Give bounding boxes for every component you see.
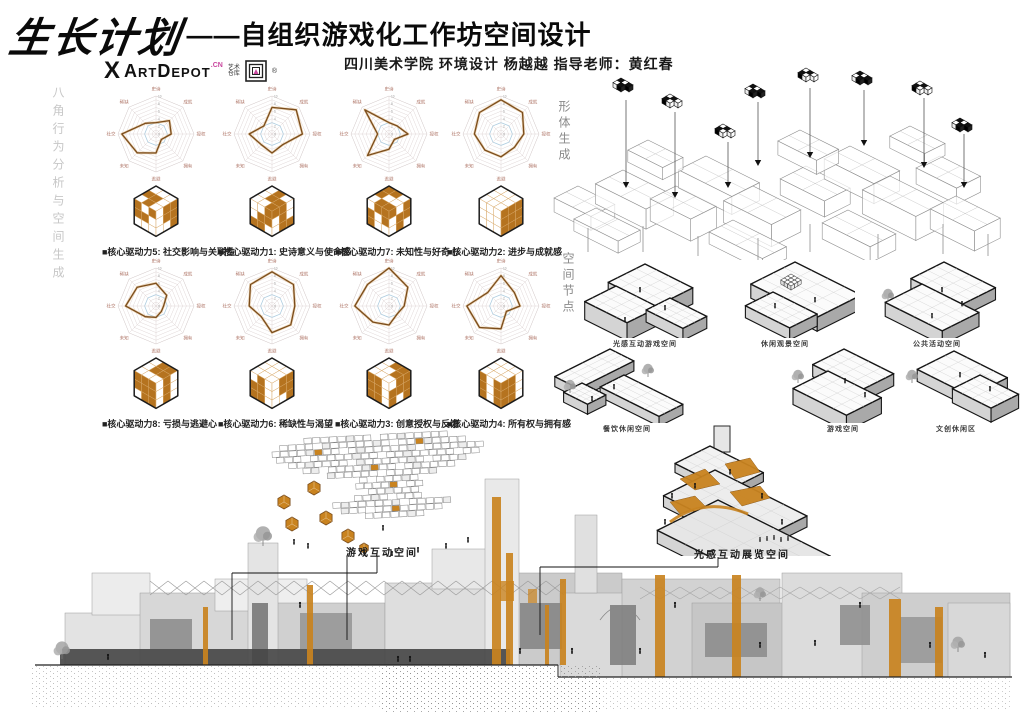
- svg-text:2: 2: [503, 125, 505, 129]
- octalysis-cell: 0246810史诗成就授权拥有逃避未知社交稀缺 ■核心驱动力5: 社交影响与关联…: [100, 86, 212, 258]
- svg-text:授权: 授权: [542, 303, 551, 310]
- logo-tagline-2: 仓库: [228, 71, 240, 77]
- svg-text:逃避: 逃避: [385, 176, 394, 183]
- svg-text:拥有: 拥有: [528, 162, 537, 169]
- svg-text:0: 0: [158, 132, 160, 136]
- svg-text:社交: 社交: [223, 303, 232, 310]
- svg-text:4: 4: [158, 289, 160, 293]
- svg-text:成就: 成就: [299, 99, 308, 106]
- svg-text:10: 10: [391, 94, 395, 98]
- space-node-caption: 文创休闲区: [890, 424, 1022, 434]
- svg-text:拥有: 拥有: [299, 334, 308, 341]
- svg-text:史诗: 史诗: [497, 86, 506, 93]
- voxel-cube-icon: [100, 182, 212, 244]
- svg-text:成就: 成就: [299, 271, 308, 278]
- svg-text:社交: 社交: [107, 131, 116, 138]
- voxel-cube-icon: [445, 354, 557, 416]
- form-generation-axon: [548, 38, 1024, 260]
- svg-text:成就: 成就: [183, 271, 192, 278]
- svg-text:授权: 授权: [197, 131, 206, 138]
- svg-text:未知: 未知: [353, 334, 362, 341]
- svg-text:6: 6: [158, 110, 160, 114]
- octalysis-cell: 0246810史诗成就授权拥有逃避未知社交稀缺 ■核心驱动力6: 稀缺性与渴望: [216, 258, 328, 430]
- svg-text:授权: 授权: [313, 303, 322, 310]
- svg-text:8: 8: [158, 274, 160, 278]
- svg-text:成就: 成就: [183, 99, 192, 106]
- svg-text:6: 6: [274, 282, 276, 286]
- svg-text:未知: 未知: [120, 162, 129, 169]
- svg-text:社交: 社交: [452, 131, 461, 138]
- voxel-cube-icon: [100, 354, 212, 416]
- radar-caption: ■核心驱动力8: 亏损与逃避心: [102, 417, 212, 430]
- svg-text:4: 4: [503, 289, 505, 293]
- svg-text:逃避: 逃避: [385, 348, 394, 355]
- svg-text:稀缺: 稀缺: [120, 271, 129, 278]
- svg-text:10: 10: [158, 94, 162, 98]
- svg-text:未知: 未知: [465, 162, 474, 169]
- space-node-cell: 餐饮休闲空间: [552, 345, 702, 434]
- svg-text:史诗: 史诗: [385, 258, 394, 265]
- svg-text:0: 0: [274, 304, 276, 308]
- svg-text:史诗: 史诗: [268, 258, 277, 265]
- radar-caption: ■核心驱动力5: 社交影响与关联性: [102, 245, 212, 258]
- radar-chart: 0246810史诗成就授权拥有逃避未知社交稀缺: [100, 258, 212, 354]
- voxel-cube-icon: [445, 182, 557, 244]
- svg-text:未知: 未知: [236, 162, 245, 169]
- svg-text:成就: 成就: [416, 99, 425, 106]
- svg-text:拥有: 拥有: [183, 162, 192, 169]
- svg-text:逃避: 逃避: [152, 176, 161, 183]
- section-label-octalysis: 八角行为分析与空间生成: [50, 86, 67, 296]
- svg-text:0: 0: [158, 304, 160, 308]
- svg-text:8: 8: [391, 274, 393, 278]
- svg-text:逃避: 逃避: [268, 348, 277, 355]
- radar-chart: 0246810史诗成就授权拥有逃避未知社交稀缺: [445, 86, 557, 182]
- svg-text:4: 4: [503, 117, 505, 121]
- svg-text:社交: 社交: [340, 303, 349, 310]
- radar-chart: 0246810史诗成就授权拥有逃避未知社交稀缺: [445, 258, 557, 354]
- svg-text:2: 2: [391, 297, 393, 301]
- svg-text:4: 4: [391, 289, 393, 293]
- radar-chart: 0246810史诗成就授权拥有逃避未知社交稀缺: [100, 86, 212, 182]
- light-cluster-axon: [610, 424, 850, 556]
- voxel-cube-icon: [333, 182, 445, 244]
- svg-text:拥有: 拥有: [183, 334, 192, 341]
- svg-text:0: 0: [391, 132, 393, 136]
- svg-text:史诗: 史诗: [152, 86, 161, 93]
- svg-text:0: 0: [503, 132, 505, 136]
- svg-text:稀缺: 稀缺: [236, 99, 245, 106]
- space-node-cell: 文创休闲区: [890, 345, 1022, 434]
- registered-mark: ®: [272, 68, 277, 75]
- radar-caption: ■核心驱动力7: 未知性与好奇心: [335, 245, 445, 258]
- svg-text:史诗: 史诗: [268, 86, 277, 93]
- space-node-axon: [890, 345, 1022, 423]
- svg-text:6: 6: [391, 282, 393, 286]
- voxel-cube-icon: [216, 182, 328, 244]
- space-node-axon: [715, 258, 855, 338]
- svg-text:拥有: 拥有: [528, 334, 537, 341]
- svg-text:稀缺: 稀缺: [465, 99, 474, 106]
- svg-text:未知: 未知: [353, 162, 362, 169]
- svg-text:稀缺: 稀缺: [120, 99, 129, 106]
- svg-text:授权: 授权: [313, 131, 322, 138]
- artdepot-mark-icon: [244, 59, 268, 83]
- radar-chart: 0246810史诗成就授权拥有逃避未知社交稀缺: [333, 258, 445, 354]
- svg-text:0: 0: [391, 304, 393, 308]
- logo-x-glyph: X: [104, 57, 120, 85]
- svg-text:10: 10: [503, 266, 507, 270]
- voxel-cube-icon: [333, 354, 445, 416]
- radar-chart: 0246810史诗成就授权拥有逃避未知社交稀缺: [216, 86, 328, 182]
- svg-text:拥有: 拥有: [416, 334, 425, 341]
- radar-chart: 0246810史诗成就授权拥有逃避未知社交稀缺: [216, 258, 328, 354]
- radar-caption: ■核心驱动力2: 进步与成就感: [447, 245, 557, 258]
- svg-text:稀缺: 稀缺: [465, 271, 474, 278]
- svg-text:2: 2: [158, 125, 160, 129]
- callout-game-space: 游戏互动空间: [346, 544, 418, 559]
- svg-text:社交: 社交: [452, 303, 461, 310]
- svg-text:10: 10: [503, 94, 507, 98]
- svg-text:8: 8: [391, 102, 393, 106]
- svg-text:社交: 社交: [223, 131, 232, 138]
- voxel-cube-icon: [216, 354, 328, 416]
- svg-text:稀缺: 稀缺: [353, 271, 362, 278]
- logo-cn-suffix: .CN: [211, 62, 223, 69]
- svg-text:史诗: 史诗: [497, 258, 506, 265]
- game-cluster-axon: [268, 428, 520, 556]
- svg-text:4: 4: [274, 117, 276, 121]
- svg-text:成就: 成就: [528, 271, 537, 278]
- svg-text:逃避: 逃避: [268, 176, 277, 183]
- svg-text:社交: 社交: [340, 131, 349, 138]
- svg-text:逃避: 逃避: [497, 348, 506, 355]
- svg-text:10: 10: [274, 266, 278, 270]
- svg-text:逃避: 逃避: [152, 348, 161, 355]
- svg-text:2: 2: [274, 297, 276, 301]
- svg-text:未知: 未知: [236, 334, 245, 341]
- svg-text:6: 6: [391, 110, 393, 114]
- svg-text:4: 4: [158, 117, 160, 121]
- svg-text:未知: 未知: [465, 334, 474, 341]
- octalysis-cell: 0246810史诗成就授权拥有逃避未知社交稀缺 ■核心驱动力4: 所有权与拥有感: [445, 258, 557, 430]
- svg-text:2: 2: [274, 125, 276, 129]
- svg-text:6: 6: [274, 110, 276, 114]
- svg-text:成就: 成就: [528, 99, 537, 106]
- space-node-axon: [862, 258, 1012, 338]
- space-node-axon: [552, 345, 702, 423]
- octalysis-cell: 0246810史诗成就授权拥有逃避未知社交稀缺 ■核心驱动力3: 创意授权与反馈: [333, 258, 445, 430]
- space-node-axon: [570, 258, 720, 338]
- page-subtitle: ——自组织游戏化工作坊空间设计: [186, 20, 591, 50]
- space-node-cell: 光感互动游戏空间: [570, 258, 720, 349]
- svg-text:4: 4: [391, 117, 393, 121]
- svg-text:稀缺: 稀缺: [236, 271, 245, 278]
- svg-text:8: 8: [274, 102, 276, 106]
- artdepot-logo: X ArtDepot.CN 艺术 仓库 ®: [104, 57, 277, 85]
- svg-text:逃避: 逃避: [497, 176, 506, 183]
- svg-text:8: 8: [158, 102, 160, 106]
- svg-text:社交: 社交: [107, 303, 116, 310]
- octalysis-cell: 0246810史诗成就授权拥有逃避未知社交稀缺 ■核心驱动力8: 亏损与逃避心: [100, 258, 212, 430]
- svg-text:未知: 未知: [120, 334, 129, 341]
- radar-caption: ■核心驱动力1: 史诗意义与使命感: [218, 245, 328, 258]
- svg-text:授权: 授权: [430, 303, 439, 310]
- svg-text:授权: 授权: [430, 131, 439, 138]
- svg-text:10: 10: [274, 94, 278, 98]
- space-node-cell: 公共活动空间: [862, 258, 1012, 349]
- svg-text:授权: 授权: [197, 303, 206, 310]
- page-title: 生长计划: [6, 4, 186, 64]
- svg-text:10: 10: [158, 266, 162, 270]
- svg-text:0: 0: [503, 304, 505, 308]
- svg-text:6: 6: [503, 110, 505, 114]
- octalysis-cell: 0246810史诗成就授权拥有逃避未知社交稀缺 ■核心驱动力1: 史诗意义与使命…: [216, 86, 328, 258]
- svg-text:4: 4: [274, 289, 276, 293]
- svg-text:拥有: 拥有: [299, 162, 308, 169]
- svg-text:2: 2: [158, 297, 160, 301]
- svg-text:2: 2: [503, 297, 505, 301]
- space-node-cell: 休闲观景空间: [715, 258, 855, 349]
- svg-text:史诗: 史诗: [152, 258, 161, 265]
- radar-chart: 0246810史诗成就授权拥有逃避未知社交稀缺: [333, 86, 445, 182]
- octalysis-cell: 0246810史诗成就授权拥有逃避未知社交稀缺 ■核心驱动力7: 未知性与好奇心: [333, 86, 445, 258]
- svg-text:0: 0: [274, 132, 276, 136]
- logo-wordmark: ArtDepot: [124, 61, 211, 81]
- callout-light-space: 光感互动展览空间: [694, 546, 790, 561]
- svg-text:稀缺: 稀缺: [353, 99, 362, 106]
- svg-text:史诗: 史诗: [385, 86, 394, 93]
- svg-text:拥有: 拥有: [416, 162, 425, 169]
- octalysis-cell: 0246810史诗成就授权拥有逃避未知社交稀缺 ■核心驱动力2: 进步与成就感: [445, 86, 557, 258]
- svg-text:成就: 成就: [416, 271, 425, 278]
